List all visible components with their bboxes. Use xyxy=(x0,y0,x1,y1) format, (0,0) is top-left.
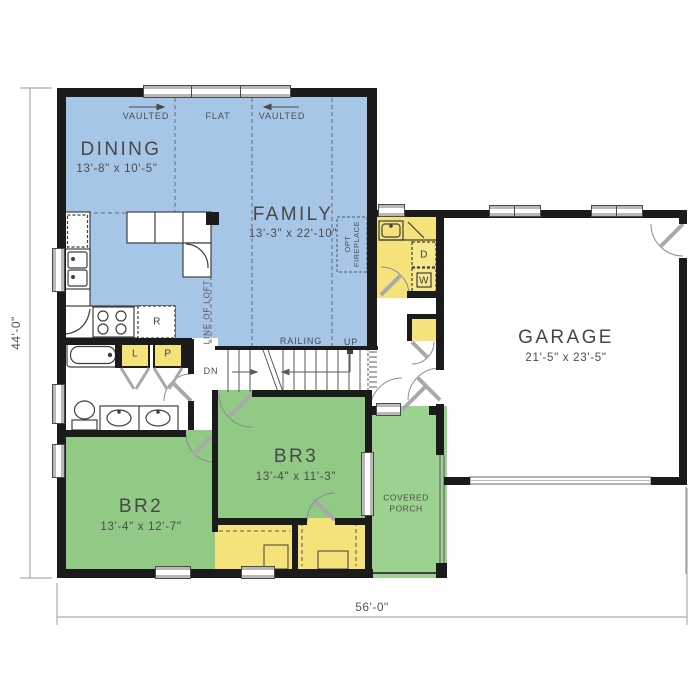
dn-label: DN xyxy=(204,366,219,376)
pantry-label: P xyxy=(164,349,171,360)
wall-laundry-bottom xyxy=(407,291,436,298)
closet-details xyxy=(219,522,356,569)
wall-br3-top xyxy=(252,390,372,397)
wall-right-upper xyxy=(367,88,377,346)
wall-garage-right-b xyxy=(679,258,687,477)
overall-width-dimension: 56'-0" xyxy=(355,600,389,614)
window-garage-1 xyxy=(489,205,541,217)
kitchen-fixtures xyxy=(65,212,219,338)
wall-left xyxy=(57,88,66,578)
window-closet-bottom xyxy=(241,566,275,579)
window-kitchen xyxy=(52,248,65,292)
dryer-label: D xyxy=(420,250,428,261)
opt-fireplace-label: OPT FIREPLACE xyxy=(343,221,361,267)
refrigerator-label: R xyxy=(153,317,161,328)
wall-br2-br3 xyxy=(212,390,218,532)
up-label: UP xyxy=(344,337,358,347)
garage-size: 21'-5" x 23'-5" xyxy=(525,352,606,364)
window-laundry xyxy=(378,204,405,217)
bathroom-fixtures xyxy=(67,343,178,431)
wall-bath-hall-b xyxy=(188,401,194,430)
window-top-band xyxy=(143,85,291,98)
washer-label: W xyxy=(419,276,429,287)
wall-tub-divider xyxy=(115,339,122,368)
br3-size: 13'-4" x 11'-3" xyxy=(256,471,336,483)
br2-label: BR2 xyxy=(119,496,163,518)
wall-closet-divider xyxy=(292,523,298,570)
dining-label: DINING xyxy=(81,139,162,161)
vault-arrows xyxy=(129,104,299,110)
flat-label: FLAT xyxy=(206,111,231,121)
porch-label-line1: COVERED xyxy=(383,493,429,504)
window-br3-porch xyxy=(361,452,374,516)
wall-closet-right xyxy=(365,518,372,570)
br3-label: BR3 xyxy=(274,446,318,468)
dining-size: 13'-8" x 10'-5" xyxy=(76,163,157,175)
floor-plan: DINING 13'-8" x 10'-5" FAMILY 13'-3" x 2… xyxy=(0,0,700,700)
garage-label: GARAGE xyxy=(518,327,614,349)
line-of-loft-label: LINE OF LOFT xyxy=(203,280,212,345)
vaulted-left-label: VAULTED xyxy=(123,111,169,121)
wall-garage-bottom-left xyxy=(444,477,470,485)
wall-garage-right-a xyxy=(679,210,687,224)
window-br2-bottom xyxy=(155,566,191,579)
wall-garage-left-lower xyxy=(436,404,444,455)
wall-garage-left-upper xyxy=(436,210,444,370)
wall-bath-hall-a xyxy=(188,339,194,374)
window-bath xyxy=(52,384,65,424)
linen-label: L xyxy=(132,349,138,360)
garage-door-and-site xyxy=(372,455,686,578)
window-br2-left xyxy=(52,444,65,478)
staircase xyxy=(228,348,377,393)
railing-label: RAILING xyxy=(280,336,322,346)
porch-label-line2: PORCH xyxy=(389,504,422,515)
family-label: FAMILY xyxy=(253,204,334,226)
wall-bath-top xyxy=(66,338,192,345)
wall-porch-front-b xyxy=(429,406,437,415)
wall-garage-bottom-right xyxy=(651,477,687,485)
opt-fireplace-line1: OPT xyxy=(343,221,352,267)
wall-garage-top xyxy=(444,210,687,218)
family-size: 13'-3" x 22'-10" xyxy=(249,228,337,240)
window-garage-2 xyxy=(591,205,643,217)
fixtures-layer xyxy=(0,0,700,700)
window-entry-sidelite xyxy=(376,403,401,416)
wall-br2-top xyxy=(66,430,186,437)
br2-size: 13'-4" x 12'-7" xyxy=(100,521,181,533)
wall-coat-closet-left xyxy=(407,319,412,341)
overall-depth-dimension: 44'-0" xyxy=(9,316,23,350)
opt-fireplace-line2: FIREPLACE xyxy=(352,221,361,267)
vaulted-right-label: VAULTED xyxy=(259,111,305,121)
wall-bottom xyxy=(57,569,373,578)
